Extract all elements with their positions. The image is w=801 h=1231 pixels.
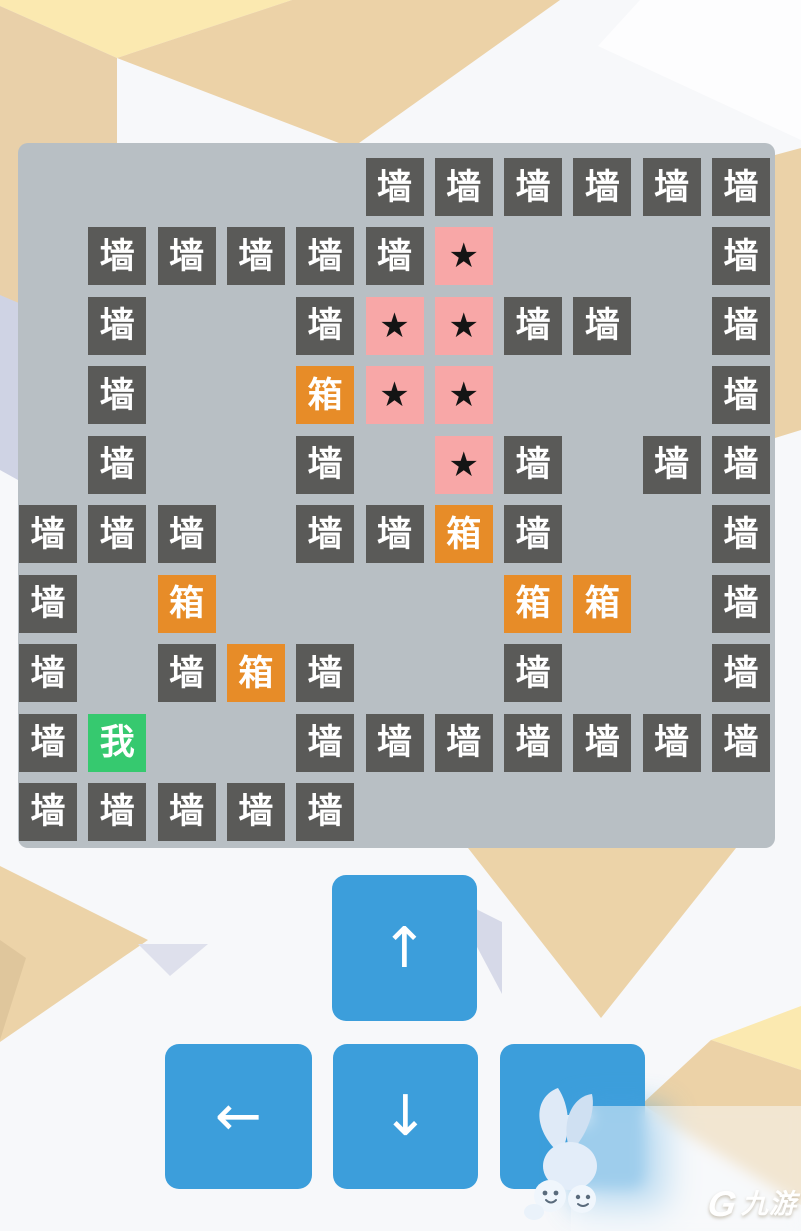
tile-star: ★ <box>366 297 424 355</box>
tile-wall: 墙 <box>435 158 493 216</box>
tile-wall: 墙 <box>643 436 701 494</box>
watermark-rabbit-mascot-icon <box>520 1086 618 1226</box>
tile-wall: 墙 <box>296 436 354 494</box>
game-screen: 墙墙墙墙墙墙墙墙墙墙墙★墙墙墙★★墙墙墙墙箱★★墙墙墙★墙墙墙墙墙墙墙墙箱墙墙墙… <box>0 0 801 1231</box>
tile-wall: 墙 <box>435 714 493 772</box>
tile-wall: 墙 <box>296 227 354 285</box>
tile-box: 箱 <box>573 575 631 633</box>
tile-wall: 墙 <box>88 297 146 355</box>
tile-wall: 墙 <box>158 227 216 285</box>
tile-wall: 墙 <box>366 227 424 285</box>
tile-wall: 墙 <box>88 436 146 494</box>
tile-wall: 墙 <box>643 158 701 216</box>
tile-wall: 墙 <box>573 158 631 216</box>
tile-wall: 墙 <box>19 644 77 702</box>
tile-wall: 墙 <box>227 783 285 841</box>
tile-wall: 墙 <box>296 714 354 772</box>
tile-wall: 墙 <box>504 158 562 216</box>
tile-wall: 墙 <box>296 505 354 563</box>
tile-wall: 墙 <box>712 505 770 563</box>
brand-name-text: 九游 <box>741 1191 797 1218</box>
tile-wall: 墙 <box>712 158 770 216</box>
tile-wall: 墙 <box>19 575 77 633</box>
tile-wall: 墙 <box>712 436 770 494</box>
tile-wall: 墙 <box>88 366 146 424</box>
tile-star: ★ <box>435 297 493 355</box>
tile-box: 箱 <box>158 575 216 633</box>
tile-star: ★ <box>435 227 493 285</box>
tile-wall: 墙 <box>504 714 562 772</box>
tile-wall: 墙 <box>158 783 216 841</box>
tile-wall: 墙 <box>296 644 354 702</box>
tile-wall: 墙 <box>712 366 770 424</box>
tile-wall: 墙 <box>19 505 77 563</box>
move-left-button[interactable]: ← <box>165 1044 312 1189</box>
watermark-brand-logo: G 九游 <box>708 1186 797 1222</box>
tile-wall: 墙 <box>504 644 562 702</box>
tile-wall: 墙 <box>19 714 77 772</box>
tile-wall: 墙 <box>573 714 631 772</box>
tile-box: 箱 <box>296 366 354 424</box>
tile-wall: 墙 <box>88 227 146 285</box>
tile-wall: 墙 <box>19 783 77 841</box>
tile-wall: 墙 <box>712 297 770 355</box>
tile-star: ★ <box>435 436 493 494</box>
sokoban-board: 墙墙墙墙墙墙墙墙墙墙墙★墙墙墙★★墙墙墙墙箱★★墙墙墙★墙墙墙墙墙墙墙墙箱墙墙墙… <box>18 143 775 848</box>
brand-g-mark-icon: G <box>705 1186 738 1222</box>
tile-wall: 墙 <box>88 783 146 841</box>
tile-wall: 墙 <box>504 436 562 494</box>
tile-wall: 墙 <box>366 158 424 216</box>
tile-box: 箱 <box>227 644 285 702</box>
tile-wall: 墙 <box>88 505 146 563</box>
tile-wall: 墙 <box>366 714 424 772</box>
tile-wall: 墙 <box>712 644 770 702</box>
tile-wall: 墙 <box>643 714 701 772</box>
move-down-button[interactable]: ↓ <box>333 1044 478 1189</box>
tile-wall: 墙 <box>158 505 216 563</box>
tile-star: ★ <box>366 366 424 424</box>
tile-wall: 墙 <box>366 505 424 563</box>
tile-box: 箱 <box>435 505 493 563</box>
tile-wall: 墙 <box>296 297 354 355</box>
tile-wall: 墙 <box>712 227 770 285</box>
tile-wall: 墙 <box>504 297 562 355</box>
tile-box: 箱 <box>504 575 562 633</box>
tile-wall: 墙 <box>573 297 631 355</box>
tile-wall: 墙 <box>296 783 354 841</box>
tile-wall: 墙 <box>712 575 770 633</box>
tile-wall: 墙 <box>227 227 285 285</box>
tile-wall: 墙 <box>158 644 216 702</box>
tile-player: 我 <box>88 714 146 772</box>
tile-wall: 墙 <box>504 505 562 563</box>
move-up-button[interactable]: ↑ <box>332 875 477 1021</box>
tile-wall: 墙 <box>712 714 770 772</box>
tile-star: ★ <box>435 366 493 424</box>
